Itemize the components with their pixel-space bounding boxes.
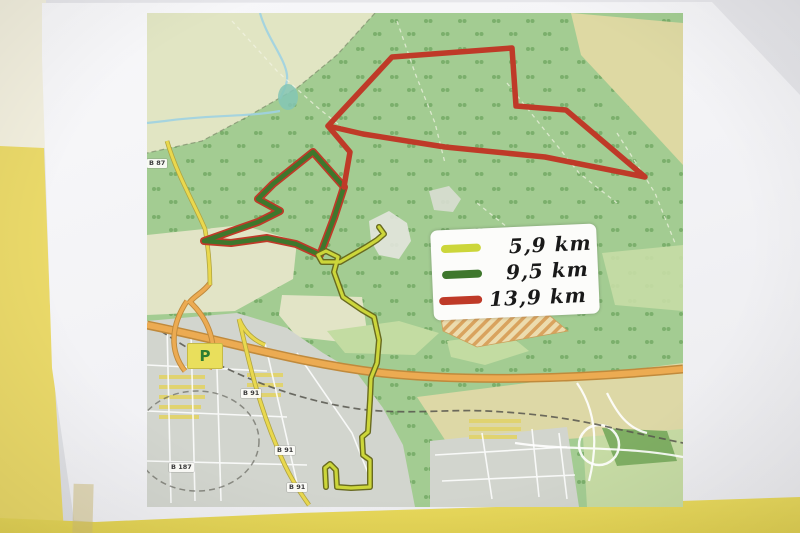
adhesive-tape (72, 484, 93, 533)
legend-row-red: 13,9 km (441, 282, 592, 315)
legend-label-9-5km: 9,5 km (505, 257, 589, 285)
parking-symbol: P (187, 343, 223, 369)
legend-box: 5,9 km 9,5 km 13,9 km (430, 223, 600, 320)
trail-map: P B 87 B 91 B 91 B 91 B 187 5,9 km 9,5 k… (147, 13, 683, 507)
road-label-b91-north: B 91 (241, 389, 261, 398)
legend-label-13-9km: 13,9 km (489, 283, 588, 311)
trail-map-graphic (147, 13, 683, 507)
meadow-east (602, 245, 683, 311)
photo-of-trail-map: { "legend": { "items": [ {"label": "5,9 … (0, 0, 800, 533)
wall-top-left-cream (0, 0, 46, 148)
green-route-swatch (440, 268, 484, 280)
road-label-b187: B 187 (169, 463, 194, 472)
road-label-b87: B 87 (147, 159, 167, 168)
road-label-b91-south: B 91 (287, 483, 307, 492)
red-route-swatch (438, 294, 484, 306)
legend-label-5-9km: 5,9 km (508, 231, 592, 259)
yellow-route-swatch (439, 242, 483, 254)
road-label-b91-mid: B 91 (275, 446, 295, 455)
